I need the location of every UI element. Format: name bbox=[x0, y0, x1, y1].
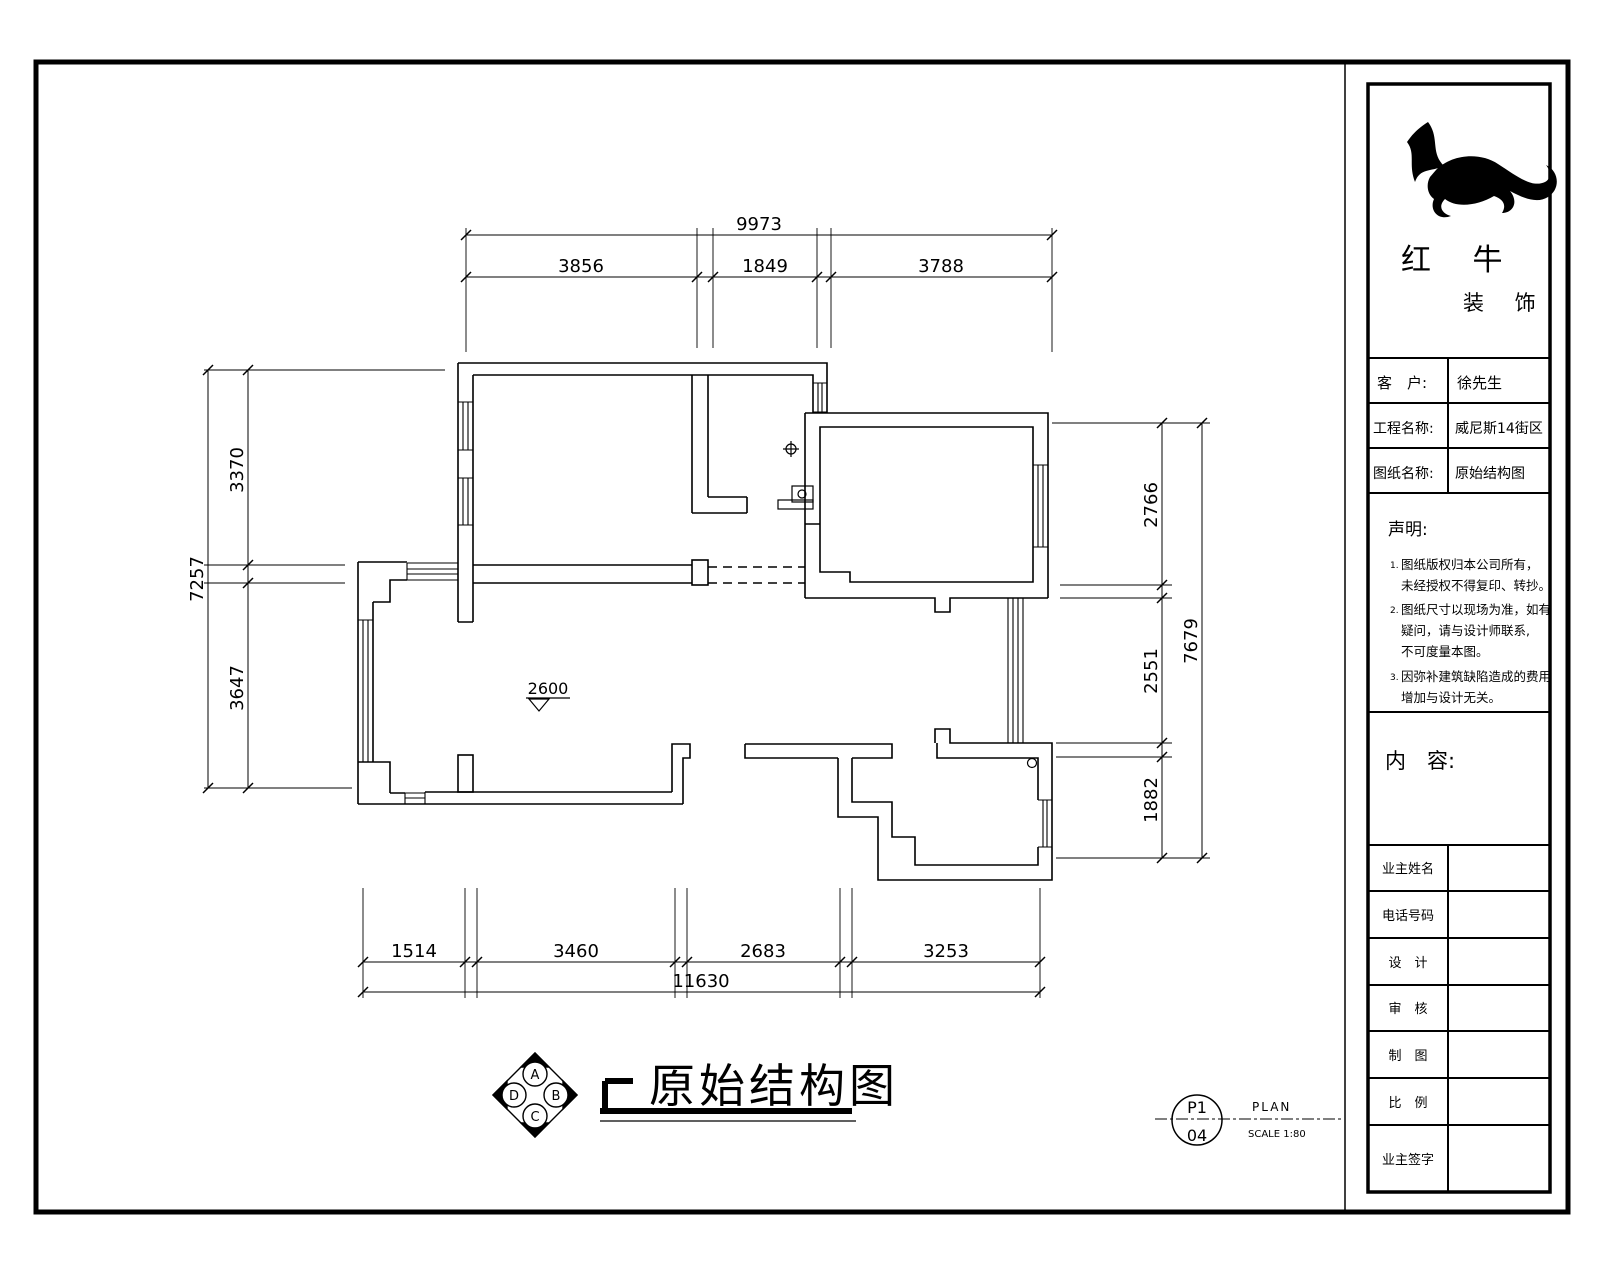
statement-note2-no: 2. bbox=[1390, 606, 1399, 616]
dim-right-overall: 7679 bbox=[1181, 618, 1202, 664]
dim-left-overall: 7257 bbox=[187, 556, 208, 602]
content-label: 内 容: bbox=[1385, 749, 1455, 773]
plan-stamp: P1 04 PLAN SCALE 1:80 bbox=[1155, 1095, 1344, 1145]
statement-title: 声明: bbox=[1388, 520, 1428, 540]
dim-bottom-seg4: 3253 bbox=[923, 941, 969, 962]
drawing-name-value: 原始结构图 bbox=[1455, 466, 1525, 482]
drain-symbol bbox=[783, 441, 799, 457]
compass-letter-a: A bbox=[531, 1068, 540, 1083]
dim-right-seg2: 2551 bbox=[1141, 648, 1162, 694]
dimension-lines bbox=[208, 235, 1202, 992]
stamp-scale-label: SCALE 1:80 bbox=[1248, 1129, 1306, 1140]
level-marker: 2600 bbox=[526, 679, 570, 711]
statement-note2-line2: 疑问，请与设计师联系, bbox=[1401, 623, 1530, 638]
company-logo bbox=[1407, 122, 1557, 217]
client-label: 客 户: bbox=[1377, 374, 1427, 392]
sign-row-scale: 比 例 bbox=[1388, 1096, 1427, 1111]
brand-name: 红 牛 bbox=[1401, 243, 1519, 278]
compass-letter-b: B bbox=[552, 1089, 561, 1104]
project-label: 工程名称: bbox=[1373, 421, 1434, 437]
dim-top-seg3: 3788 bbox=[918, 256, 964, 277]
statement-note1-no: 1. bbox=[1390, 561, 1399, 571]
drawing-title-group: 原始结构图 bbox=[600, 1059, 899, 1121]
stamp-code-top: P1 bbox=[1187, 1098, 1207, 1117]
sign-row-drafter: 制 图 bbox=[1388, 1049, 1427, 1064]
dim-bottom-overall: 11630 bbox=[672, 971, 729, 992]
statement-note1-line1: 图纸版权归本公司所有， bbox=[1401, 557, 1539, 572]
sign-row-owner-name: 业主姓名 bbox=[1382, 861, 1434, 877]
statement-note2-line3: 不可度量本图。 bbox=[1401, 644, 1489, 659]
title-block-gridlines bbox=[1368, 358, 1550, 1192]
floor-plan-walls bbox=[358, 363, 1052, 880]
drawing-name-label: 图纸名称: bbox=[1373, 466, 1434, 482]
brand-subname: 装 饰 bbox=[1463, 291, 1548, 315]
client-value: 徐先生 bbox=[1457, 374, 1502, 392]
dim-right-seg1: 2766 bbox=[1141, 482, 1162, 528]
drawing-sheet: 2600 9973 3856 1849 3788 3370 7257 3647 … bbox=[0, 0, 1600, 1280]
pipe-box-fixture bbox=[778, 486, 813, 509]
sign-row-phone: 电话号码 bbox=[1382, 909, 1434, 924]
dim-right-seg3: 1882 bbox=[1141, 777, 1162, 823]
statement-note3-no: 3. bbox=[1390, 673, 1399, 683]
dim-left-seg1: 3370 bbox=[227, 447, 248, 493]
statement-note2-line1: 图纸尺寸以现场为准，如有 bbox=[1401, 602, 1551, 617]
title-corner-mark bbox=[605, 1081, 633, 1111]
stamp-plan-label: PLAN bbox=[1252, 1100, 1291, 1114]
compass-letter-c: C bbox=[530, 1110, 539, 1125]
page-title: 原始结构图 bbox=[649, 1059, 899, 1113]
dim-bottom-seg3: 2683 bbox=[740, 941, 786, 962]
sign-row-designer: 设 计 bbox=[1388, 956, 1427, 971]
dim-top-overall: 9973 bbox=[736, 214, 782, 235]
level-triangle-icon bbox=[526, 698, 570, 711]
project-value: 威尼斯14街区 bbox=[1455, 421, 1543, 437]
dimension-ticks bbox=[203, 230, 1207, 997]
dimension-extension-lines bbox=[204, 228, 1210, 998]
sign-row-owner-signature: 业主签字 bbox=[1382, 1152, 1434, 1168]
statement-note3-line2: 增加与设计无关。 bbox=[1401, 690, 1501, 705]
dim-bottom-seg1: 1514 bbox=[391, 941, 437, 962]
stamp-code-bottom: 04 bbox=[1187, 1126, 1207, 1145]
statement-note1-line2: 未经授权不得复印、转抄。 bbox=[1401, 578, 1551, 593]
dim-top-seg1: 3856 bbox=[558, 256, 604, 277]
dim-top-seg2: 1849 bbox=[742, 256, 788, 277]
floor-drain bbox=[1028, 759, 1037, 768]
compass-letter-d: D bbox=[509, 1089, 519, 1104]
level-value: 2600 bbox=[528, 679, 569, 698]
sign-row-reviewer: 审 核 bbox=[1388, 1002, 1427, 1017]
cad-drawing: 2600 9973 3856 1849 3788 3370 7257 3647 … bbox=[0, 0, 1600, 1280]
dim-left-seg2: 3647 bbox=[227, 665, 248, 711]
compass-symbol: A B C D bbox=[493, 1053, 577, 1137]
statement-note3-line1: 因弥补建筑缺陷造成的费用 bbox=[1401, 669, 1551, 684]
dimension-labels: 9973 3856 1849 3788 3370 7257 3647 2766 … bbox=[187, 214, 1202, 992]
dim-bottom-seg2: 3460 bbox=[553, 941, 599, 962]
bull-logo-body-icon bbox=[1428, 156, 1557, 217]
title-block: 红 牛 装 饰 客 户: 徐先生 工程名称: 威尼斯14街区 图纸名称: 原始结… bbox=[1368, 84, 1557, 1192]
plan-fixtures bbox=[778, 441, 1037, 768]
